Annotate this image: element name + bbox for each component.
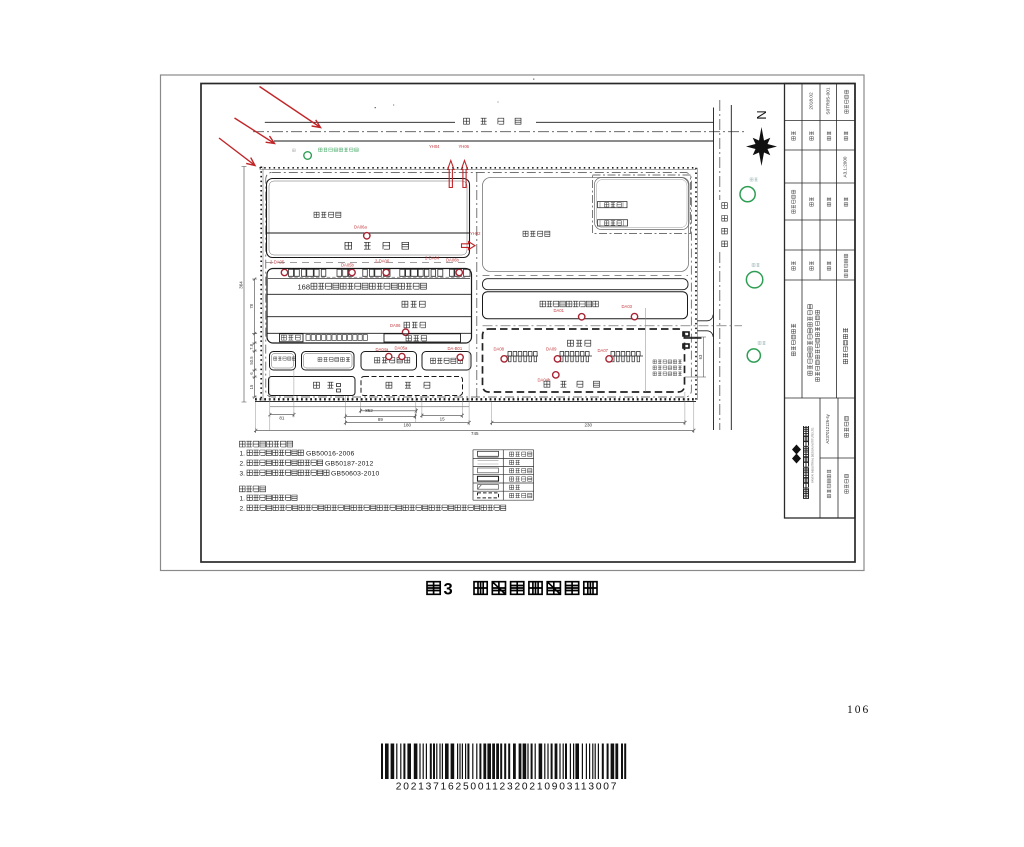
svg-text:852: 852 [365,408,373,413]
svg-text:1.: 1. [240,451,246,458]
svg-text:2-DA05: 2-DA05 [270,260,285,265]
svg-text:2.: 2. [240,461,246,468]
svg-text:168: 168 [298,283,311,292]
svg-text:YH04: YH04 [429,144,440,149]
svg-text:DA08: DA08 [494,347,505,352]
svg-text:230: 230 [585,423,593,428]
svg-text:DA-B01: DA-B01 [448,346,463,351]
svg-text:DA05b: DA05b [341,263,354,268]
svg-text:3: 3 [444,581,453,599]
svg-text:364: 364 [239,281,244,289]
svg-text:A3.1:2000: A3.1:2000 [843,156,848,177]
svg-text:180: 180 [404,423,412,428]
svg-text:GB50187-2012: GB50187-2012 [325,460,374,467]
svg-text:2018.02: 2018.02 [809,92,815,110]
svg-text:GB50016-2006: GB50016-2006 [306,450,355,457]
svg-text:A237012126-sy: A237012126-sy [825,413,830,443]
svg-text:DA01: DA01 [554,308,565,313]
svg-text:1.: 1. [240,496,246,503]
svg-text:YANTAI INDUSTRIAL DESIGN IN: YANTAI INDUSTRIAL DESIGN INSTITUTE LTD. [811,427,815,483]
svg-text:15: 15 [440,417,446,422]
svg-text:7.8: 7.8 [249,343,254,349]
svg-text:N: N [754,110,769,119]
svg-text:106: 106 [847,704,870,716]
svg-text:202137162500112320210903113007: 202137162500112320210903113007 [396,782,618,793]
svg-text:2.: 2. [240,506,246,513]
svg-text:3.: 3. [240,471,246,478]
svg-text:GB50603-2010: GB50603-2010 [331,470,380,477]
svg-text:DA04a: DA04a [376,347,389,352]
svg-text:81: 81 [279,416,285,421]
svg-text:63: 63 [698,354,703,359]
svg-text:78: 78 [249,303,254,308]
svg-text:50.5: 50.5 [249,356,254,365]
svg-text:2-DA06: 2-DA06 [375,259,390,264]
svg-text:DA03: DA03 [622,304,633,309]
svg-text:745: 745 [471,431,479,436]
svg-text:2-DA04: 2-DA04 [425,256,440,261]
svg-text:S0TR05-001: S0TR05-001 [826,87,832,115]
svg-text:DA06b: DA06b [446,258,459,263]
svg-text:DA07: DA07 [598,348,609,353]
svg-text:DA09: DA09 [546,347,557,352]
svg-text:DA06: DA06 [390,323,401,328]
svg-text:YH06: YH06 [459,144,470,149]
svg-text:89: 89 [378,417,384,422]
svg-text:DA06a: DA06a [354,225,367,230]
svg-text:YH02: YH02 [470,231,481,236]
svg-text:DA05a: DA05a [395,346,408,351]
svg-text:15: 15 [249,384,254,389]
